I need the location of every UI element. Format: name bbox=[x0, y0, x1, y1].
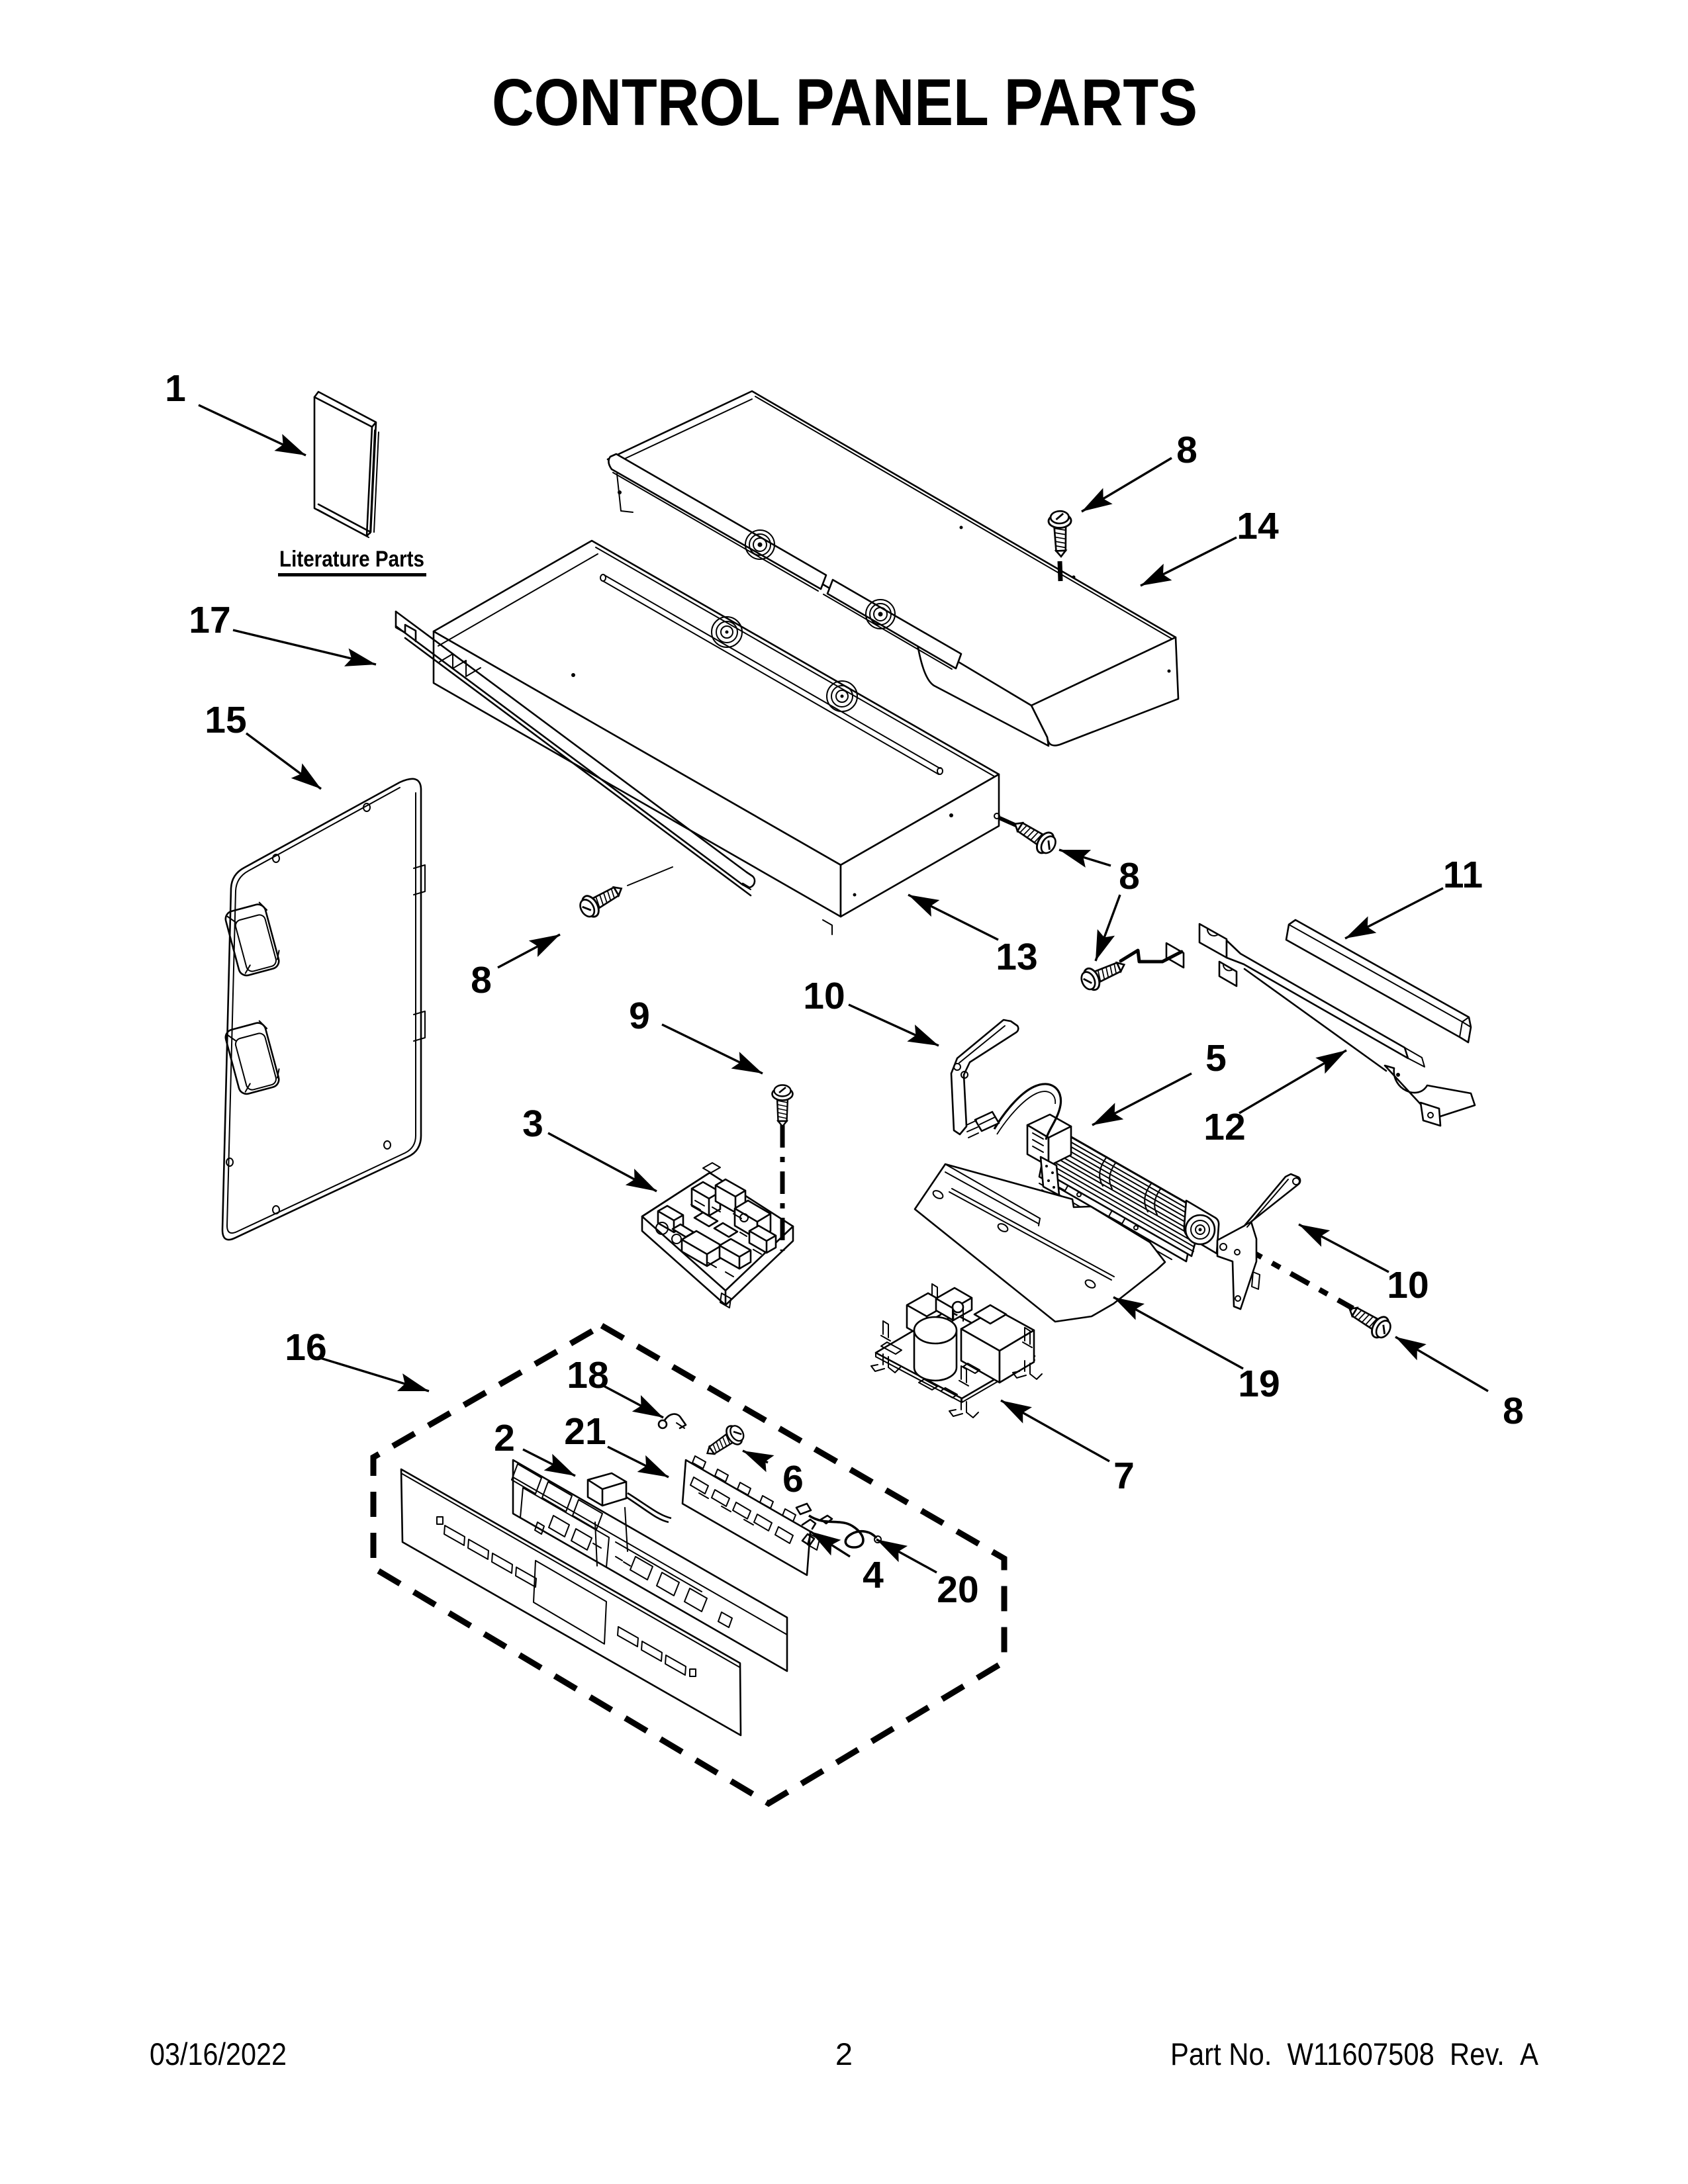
svg-text:7: 7 bbox=[1113, 1455, 1135, 1497]
svg-text:10: 10 bbox=[803, 975, 845, 1017]
svg-text:6: 6 bbox=[782, 1458, 804, 1500]
svg-text:15: 15 bbox=[205, 699, 246, 741]
svg-text:5: 5 bbox=[1205, 1037, 1227, 1079]
svg-text:20: 20 bbox=[937, 1569, 978, 1611]
svg-text:18: 18 bbox=[567, 1354, 608, 1396]
svg-text:CONTROL PANEL PARTS: CONTROL PANEL PARTS bbox=[492, 66, 1197, 140]
svg-text:2: 2 bbox=[835, 2036, 853, 2071]
svg-text:21: 21 bbox=[564, 1410, 606, 1453]
svg-text:8: 8 bbox=[1119, 855, 1140, 897]
svg-text:03/16/2022: 03/16/2022 bbox=[150, 2036, 287, 2071]
svg-text:2: 2 bbox=[494, 1417, 515, 1459]
svg-text:19: 19 bbox=[1238, 1363, 1280, 1405]
svg-text:8: 8 bbox=[471, 959, 492, 1001]
svg-text:4: 4 bbox=[863, 1554, 884, 1596]
svg-text:Literature Parts: Literature Parts bbox=[279, 547, 424, 572]
svg-text:16: 16 bbox=[285, 1326, 326, 1369]
svg-text:14: 14 bbox=[1237, 505, 1279, 547]
svg-text:1: 1 bbox=[165, 367, 186, 410]
svg-text:8: 8 bbox=[1503, 1390, 1524, 1432]
svg-text:8: 8 bbox=[1176, 429, 1197, 471]
svg-text:3: 3 bbox=[522, 1103, 543, 1145]
svg-text:10: 10 bbox=[1387, 1264, 1429, 1306]
svg-text:13: 13 bbox=[996, 936, 1037, 978]
svg-text:Part No. W11607508 Rev. A: Part No. W11607508 Rev. A bbox=[1170, 2036, 1539, 2071]
svg-text:17: 17 bbox=[189, 599, 230, 641]
svg-text:11: 11 bbox=[1443, 854, 1483, 896]
svg-text:9: 9 bbox=[629, 995, 650, 1037]
